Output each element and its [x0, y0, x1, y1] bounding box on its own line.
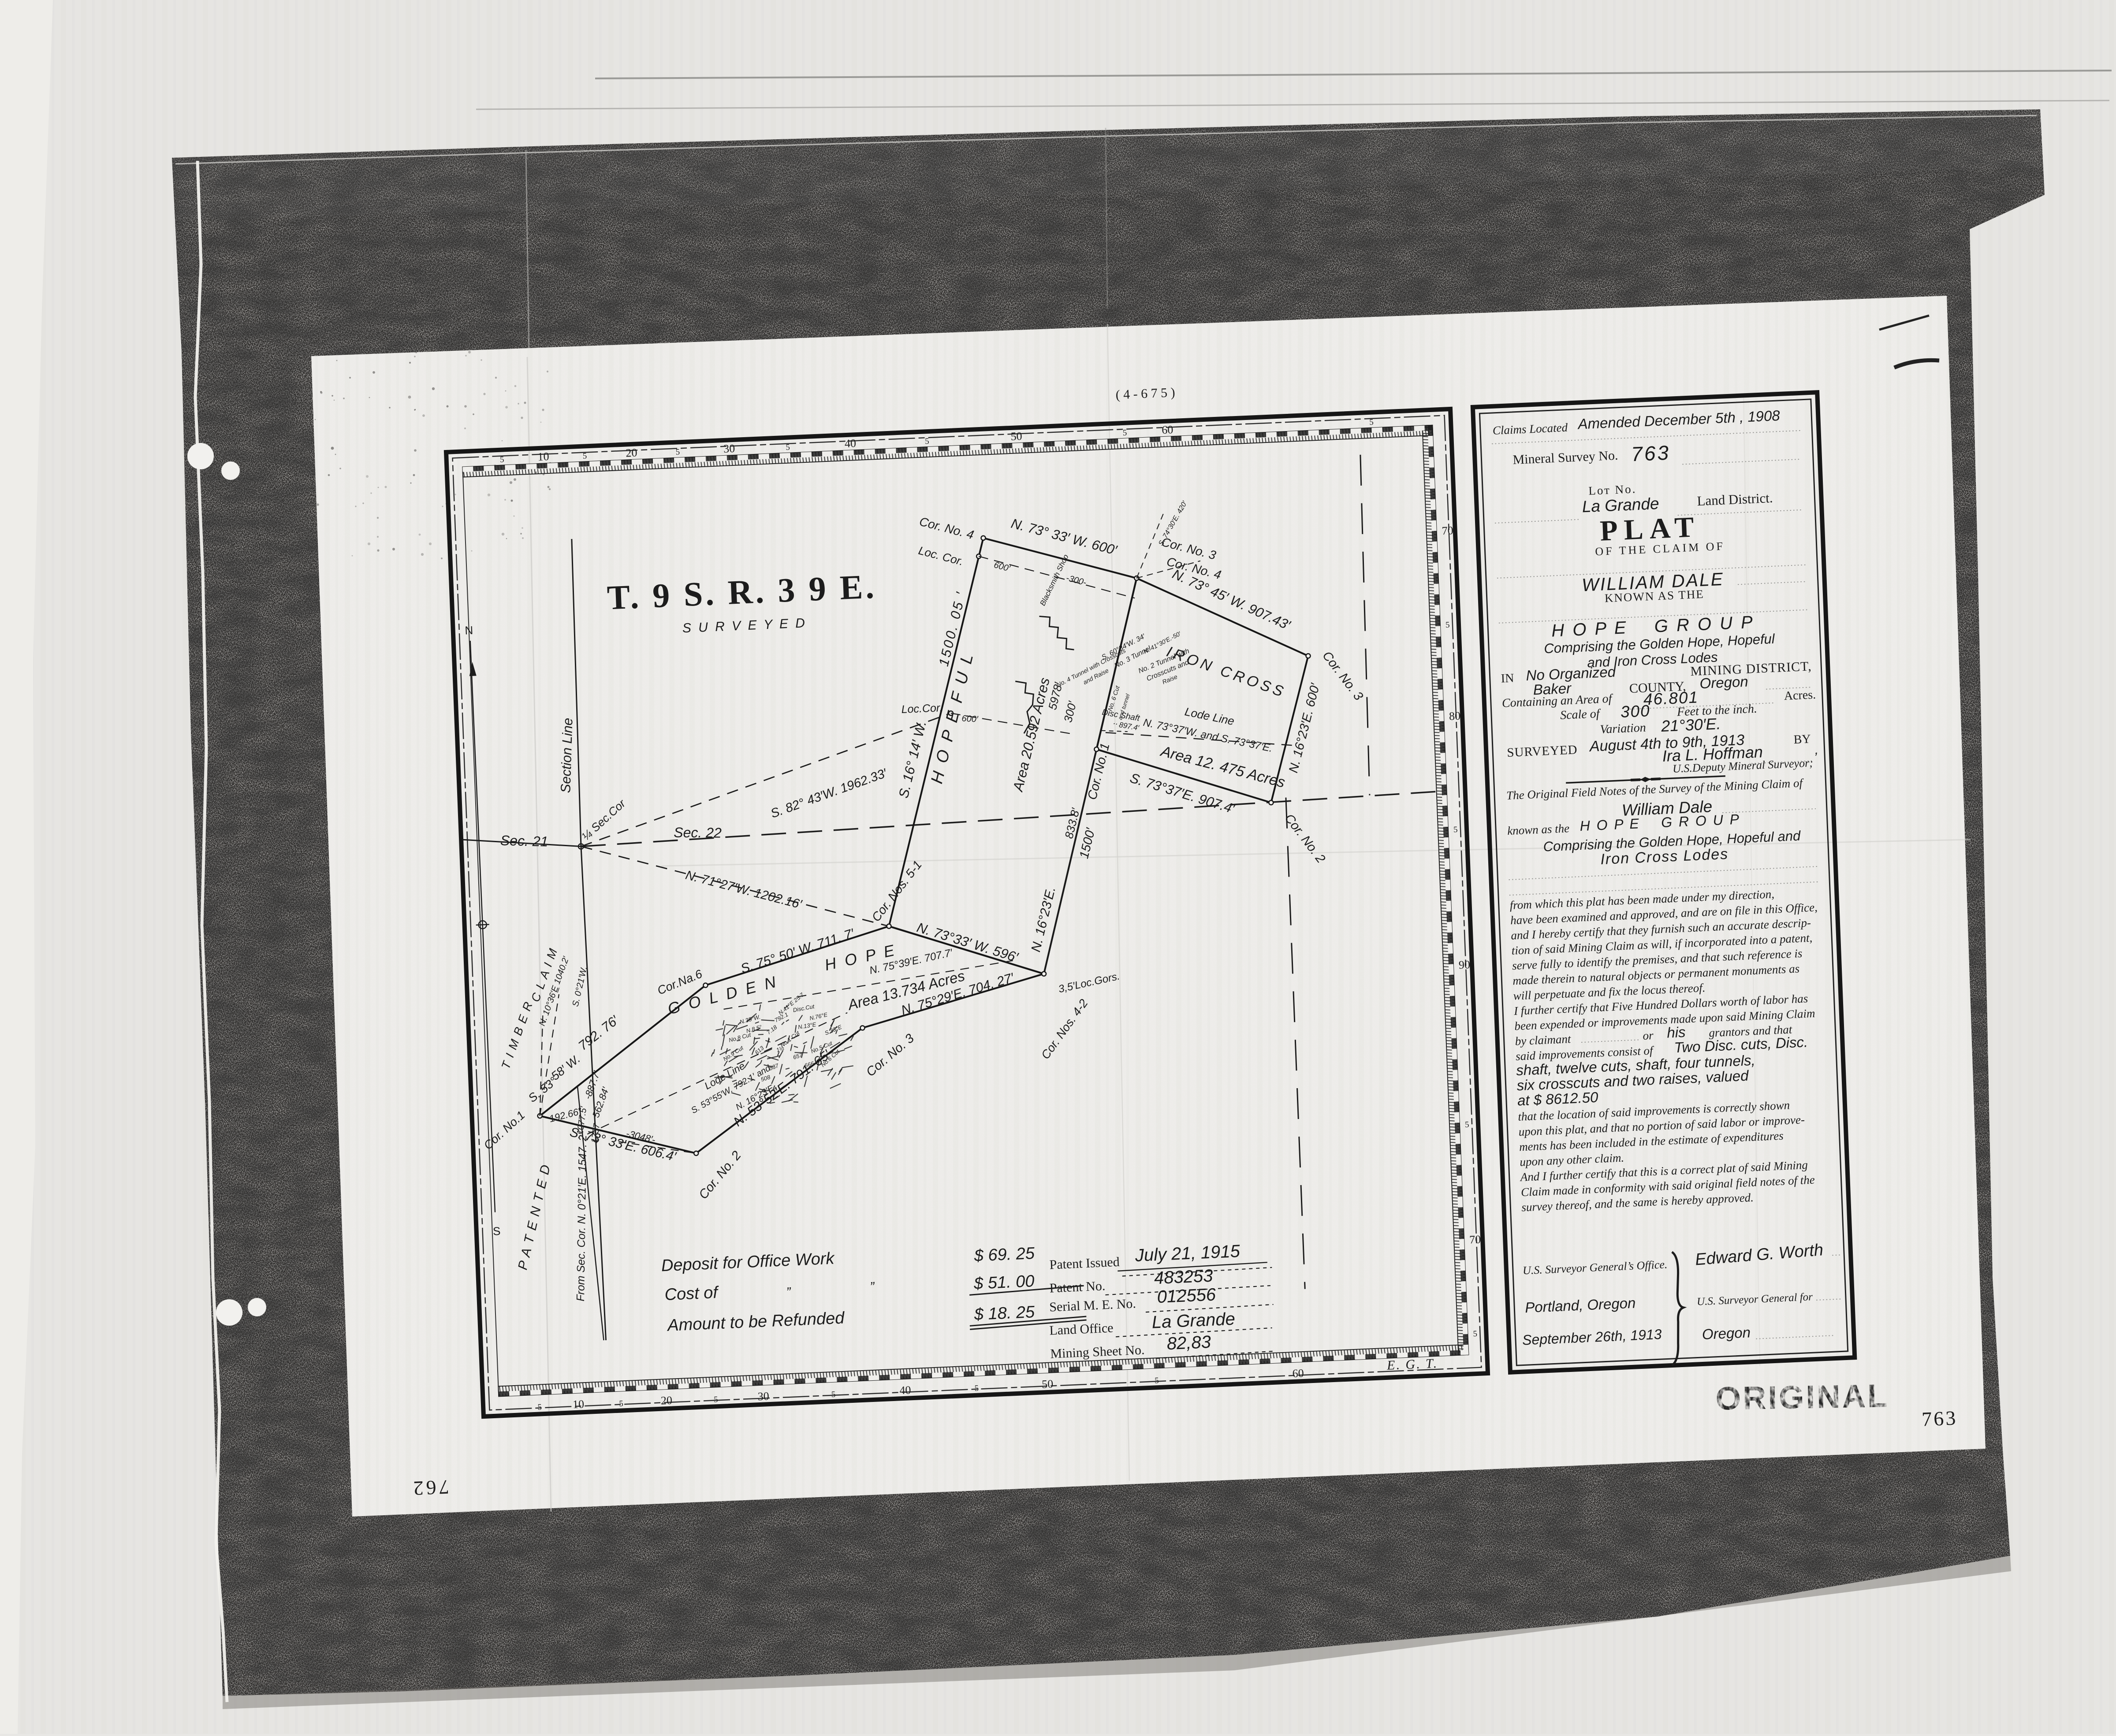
- svg-text:Patent Issued: Patent Issued: [1049, 1255, 1120, 1272]
- svg-text:70: 70: [1442, 524, 1453, 537]
- svg-text:Lот Nо.: Lот Nо.: [1588, 482, 1637, 498]
- svg-text:21°30′E.: 21°30′E.: [1661, 714, 1721, 735]
- svg-text:Variatiоn: Variatiоn: [1600, 721, 1646, 736]
- svg-text:10: 10: [537, 450, 549, 463]
- svg-text:E. G. T.: E. G. T.: [1386, 1356, 1438, 1373]
- svg-text:Oregon: Oregon: [1699, 673, 1748, 691]
- svg-text:N: N: [465, 624, 473, 637]
- svg-text:20: 20: [626, 446, 637, 459]
- svg-text:5: 5: [974, 1384, 979, 1393]
- svg-text:From Sec. Cor. N. 0°21′E. 154: From Sec. Cor. N. 0°21′E. 1547. 2′: [574, 1132, 589, 1301]
- svg-text:90: 90: [1458, 958, 1470, 971]
- svg-text:Acres.: Acres.: [1784, 688, 1816, 703]
- svg-text:Patent No.: Patent No.: [1049, 1279, 1106, 1295]
- svg-text:Oregon: Oregon: [1702, 1324, 1751, 1342]
- svg-text:82,83: 82,83: [1166, 1332, 1211, 1353]
- svg-text:ORIGINAL: ORIGINAL: [1715, 1377, 1889, 1417]
- svg-text:300: 300: [1620, 702, 1650, 721]
- svg-text:5: 5: [500, 455, 504, 464]
- svg-text:50: 50: [1010, 430, 1022, 443]
- svg-text:$ 69. 25: $ 69. 25: [973, 1244, 1036, 1265]
- svg-text:5: 5: [925, 437, 929, 446]
- svg-text:70: 70: [1469, 1233, 1481, 1246]
- svg-text:Cost of: Cost of: [664, 1283, 719, 1304]
- svg-text:BY: BY: [1793, 732, 1811, 747]
- svg-text:762: 762: [410, 1476, 450, 1500]
- svg-text:by claimant: by claimant: [1515, 1032, 1572, 1048]
- svg-text:50: 50: [1042, 1377, 1054, 1390]
- svg-text:or: or: [1643, 1029, 1654, 1042]
- svg-text:600′: 600′: [961, 714, 979, 724]
- svg-text:( 4 - 6 7 5 ): ( 4 - 6 7 5 ): [1115, 385, 1175, 402]
- svg-text:60: 60: [1162, 423, 1173, 436]
- svg-text:Sec. 22: Sec. 22: [674, 825, 722, 841]
- svg-text:30: 30: [757, 1390, 769, 1403]
- svg-text:5: 5: [1155, 1376, 1159, 1385]
- svg-text:763: 763: [1921, 1406, 1958, 1430]
- svg-text:40: 40: [899, 1383, 911, 1397]
- svg-text:5: 5: [1369, 418, 1374, 427]
- svg-text:5: 5: [1465, 1120, 1469, 1129]
- svg-text:his: his: [1667, 1024, 1686, 1041]
- svg-text:,: ,: [1814, 743, 1819, 757]
- svg-text:40: 40: [844, 437, 856, 450]
- svg-text:10: 10: [573, 1398, 585, 1411]
- svg-text:La Grande: La Grande: [1151, 1309, 1236, 1332]
- svg-text:5: 5: [582, 451, 587, 461]
- svg-text:60: 60: [1292, 1367, 1304, 1380]
- svg-text:483253: 483253: [1154, 1266, 1213, 1288]
- svg-text:known as the: known as the: [1507, 822, 1570, 837]
- svg-text:763: 763: [1631, 441, 1671, 466]
- svg-text:5: 5: [786, 442, 790, 452]
- svg-text:5: 5: [1473, 1329, 1477, 1338]
- svg-text:Land Office: Land Office: [1049, 1320, 1114, 1338]
- svg-text:Sec. 21: Sec. 21: [500, 833, 548, 850]
- svg-text:20: 20: [660, 1394, 672, 1407]
- svg-text:80: 80: [1449, 710, 1460, 723]
- svg-text:5: 5: [714, 1395, 718, 1404]
- svg-text:Section Line: Section Line: [558, 717, 575, 793]
- svg-text:5: 5: [1453, 825, 1458, 834]
- svg-text:5: 5: [537, 1402, 542, 1412]
- svg-text:30: 30: [723, 442, 735, 455]
- svg-text:at $ 8612.50: at $ 8612.50: [1517, 1089, 1598, 1109]
- svg-text:IN: IN: [1501, 671, 1514, 685]
- svg-text:Land District.: Land District.: [1697, 490, 1773, 509]
- svg-text:5: 5: [831, 1390, 836, 1399]
- svg-text:5: 5: [1445, 620, 1450, 629]
- svg-text:Loc.Cor.: Loc.Cor.: [901, 702, 943, 716]
- svg-text:S: S: [492, 1224, 500, 1238]
- svg-text:5: 5: [675, 447, 680, 457]
- svg-text:5: 5: [619, 1399, 623, 1408]
- svg-text:012556: 012556: [1157, 1285, 1217, 1307]
- svg-text:Scale of: Scale of: [1560, 707, 1602, 722]
- svg-text:5: 5: [1122, 428, 1127, 438]
